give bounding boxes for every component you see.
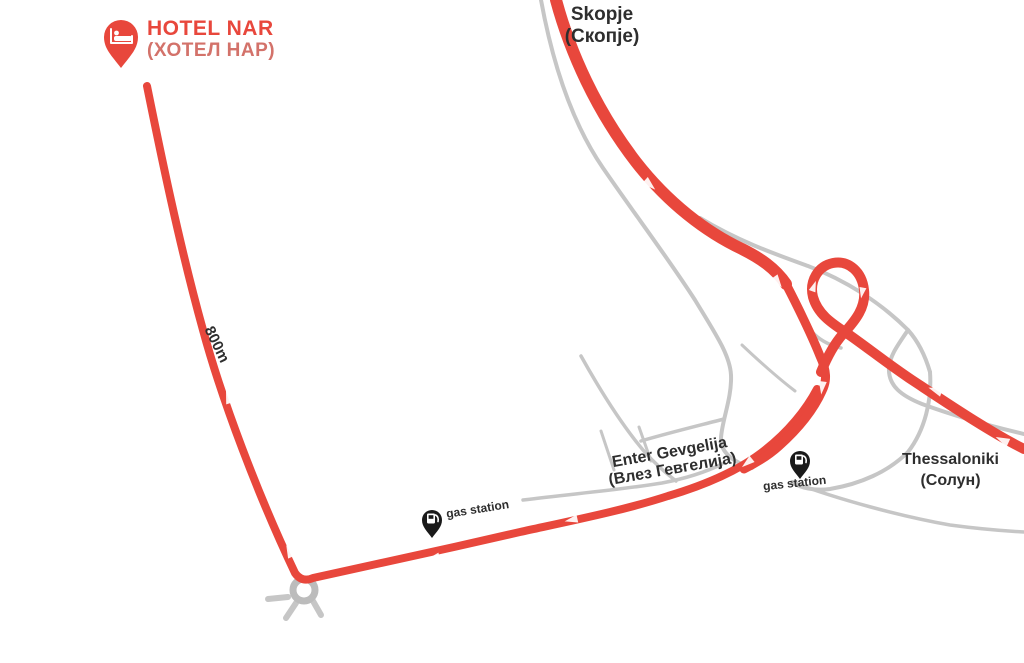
map-canvas <box>0 0 1024 663</box>
bed-pillow <box>114 31 119 36</box>
directions-map: HOTEL NAR (ХОТЕЛ НАР) Skopje (Скопје) Th… <box>0 0 1024 663</box>
roundabout <box>268 579 321 618</box>
skopje-name-cyrillic: (Скопје) <box>532 26 672 48</box>
hotel-name: HOTEL NAR <box>147 18 275 40</box>
hotel-pin-icon <box>104 20 138 68</box>
roundabout-spoke-southeast <box>313 601 321 615</box>
thessaloniki-label: Thessaloniki (Солун) <box>878 449 1023 491</box>
route-highway-thessaloniki-loop <box>812 263 1024 449</box>
hotel-name-cyrillic: (ХОТЕЛ НАР) <box>147 40 275 62</box>
thessaloniki-name-cyrillic: (Солун) <box>878 470 1023 491</box>
gray-connector <box>742 345 795 391</box>
hotel-label: HOTEL NAR (ХОТЕЛ НАР) <box>147 18 275 62</box>
fuel-pump-window <box>797 456 802 460</box>
fuel-pump-window <box>429 515 434 519</box>
direction-arrows <box>147 177 1010 563</box>
roundabout-spoke-south <box>286 603 296 618</box>
thessaloniki-name: Thessaloniki <box>878 449 1023 470</box>
bed-mattress <box>114 36 132 41</box>
skopje-label: Skopje (Скопје) <box>532 4 672 48</box>
direction-arrow <box>147 200 157 214</box>
gas-station-pin-icon <box>422 510 442 538</box>
skopje-name: Skopje <box>532 4 672 26</box>
roundabout-spoke-west <box>268 597 288 599</box>
